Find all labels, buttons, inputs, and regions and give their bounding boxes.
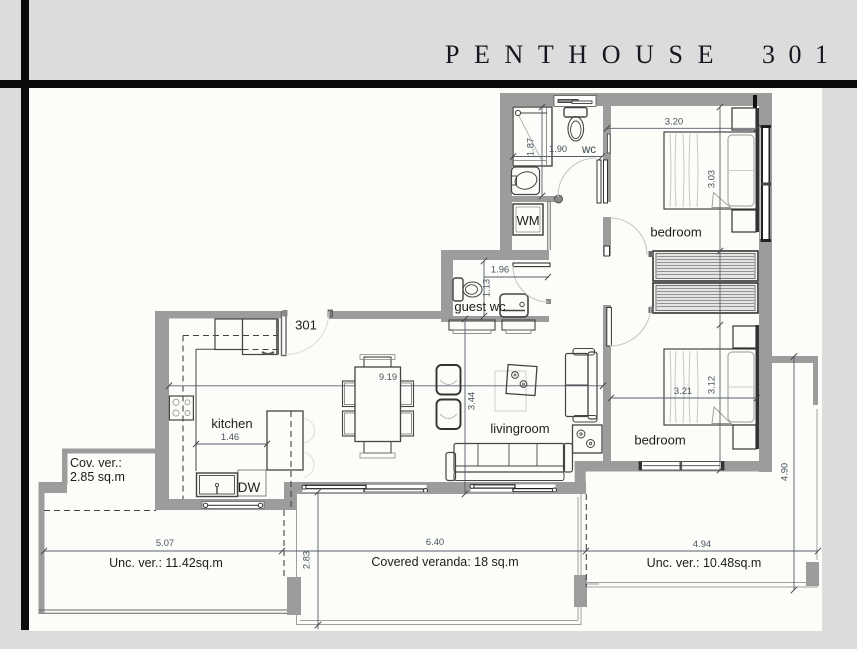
svg-text:2.83: 2.83 [301,551,312,569]
svg-text:Cov. ver.:: Cov. ver.: [70,456,122,470]
svg-text:wc: wc [581,144,596,156]
svg-text:6.40: 6.40 [426,536,444,547]
svg-text:WM: WM [516,213,539,228]
svg-text:bedroom: bedroom [650,225,701,240]
svg-text:5.07: 5.07 [156,537,174,548]
svg-text:3.12: 3.12 [706,376,717,394]
svg-text:DW: DW [238,480,261,495]
svg-text:livingroom: livingroom [490,421,549,436]
svg-text:1.90: 1.90 [549,143,567,154]
svg-text:1.46: 1.46 [221,431,239,442]
svg-text:9.19: 9.19 [379,371,397,382]
svg-text:Covered veranda: 18 sq.m: Covered veranda: 18 sq.m [371,555,518,569]
svg-text:1.13: 1.13 [481,279,492,297]
svg-text:PENTHOUSE: PENTHOUSE [445,40,728,69]
svg-text:301: 301 [295,318,317,333]
svg-text:1.96: 1.96 [491,264,509,275]
svg-text:4.90: 4.90 [779,463,790,481]
svg-text:3.03: 3.03 [706,170,717,188]
svg-text:3.20: 3.20 [665,116,683,127]
svg-text:Unc. ver.: 11.42sq.m: Unc. ver.: 11.42sq.m [109,556,223,570]
svg-text:2.85 sq.m: 2.85 sq.m [70,470,125,484]
svg-text:guest wc: guest wc [454,299,506,314]
svg-text:3.21: 3.21 [674,385,692,396]
svg-text:4.94: 4.94 [693,538,711,549]
svg-text:bedroom: bedroom [634,433,685,448]
svg-text:1.87: 1.87 [525,138,536,156]
svg-text:Unc. ver.: 10.48sq.m: Unc. ver.: 10.48sq.m [647,556,762,570]
svg-text:3.44: 3.44 [466,392,477,410]
svg-text:301: 301 [762,40,842,69]
svg-text:kitchen: kitchen [211,416,252,431]
